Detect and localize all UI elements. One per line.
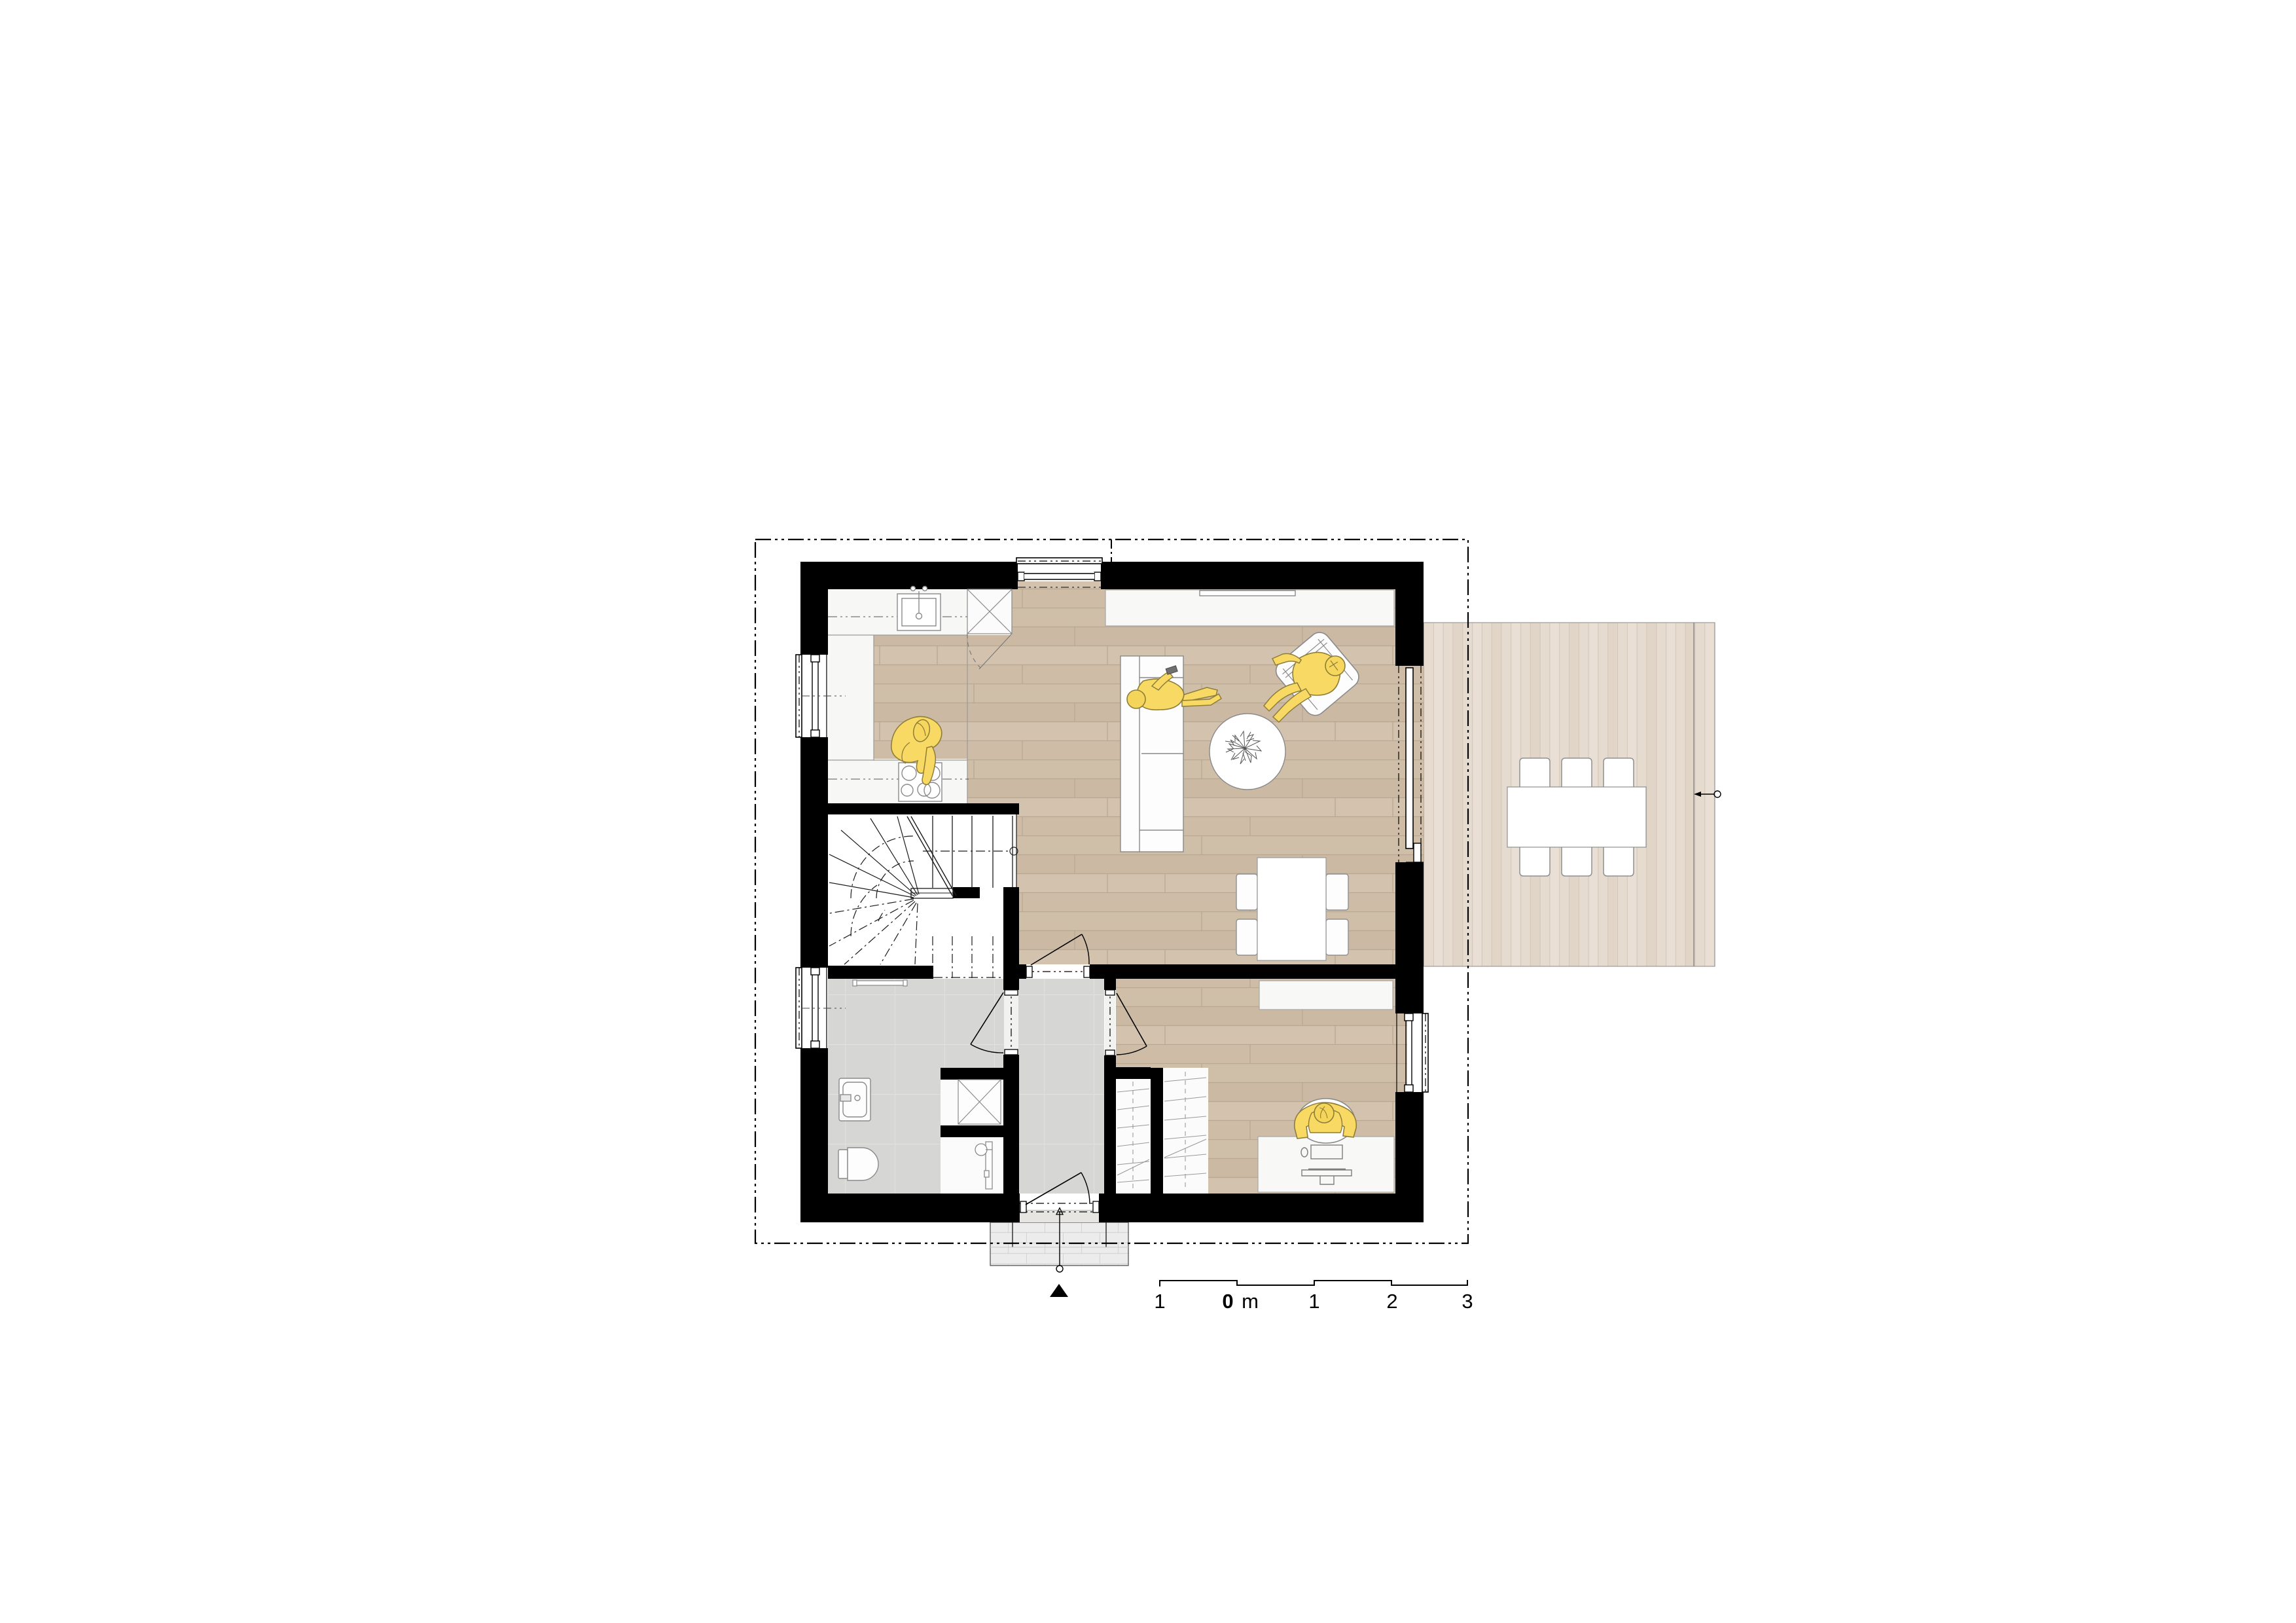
- svg-text:1: 1: [1154, 1290, 1165, 1313]
- svg-text:3: 3: [1462, 1290, 1473, 1313]
- svg-text:0: 0: [1222, 1290, 1233, 1313]
- svg-text:m: m: [1242, 1290, 1259, 1313]
- svg-text:1: 1: [1308, 1290, 1319, 1313]
- svg-text:2: 2: [1386, 1290, 1397, 1313]
